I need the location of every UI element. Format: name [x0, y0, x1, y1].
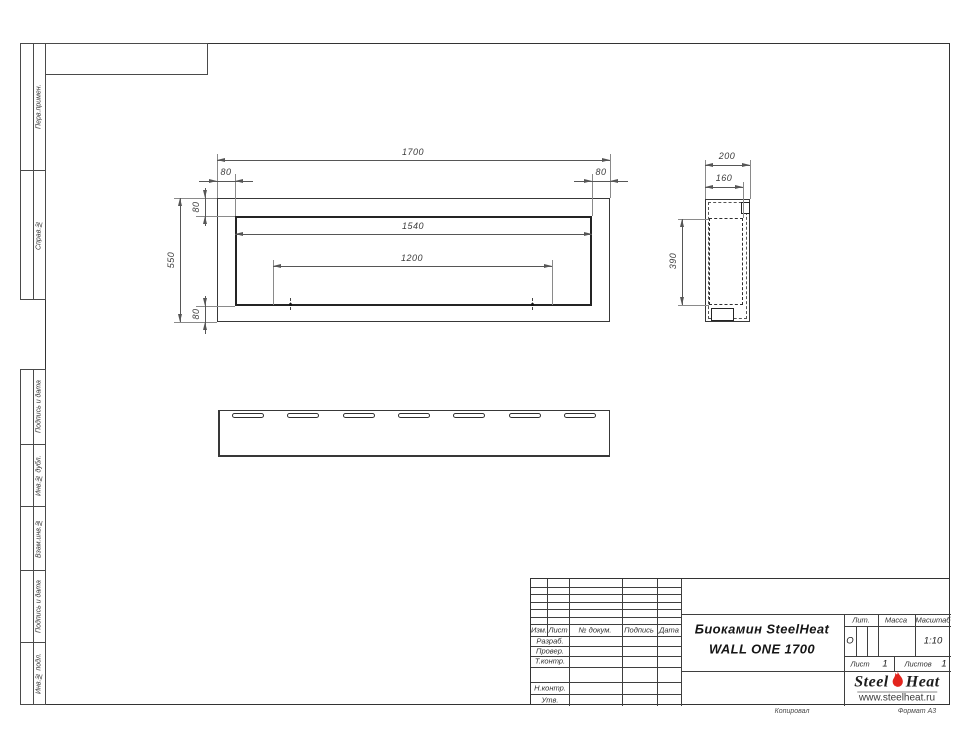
sheets-value: 1: [941, 658, 946, 669]
lit-value: О: [846, 636, 853, 647]
dimension-line-inner-depth: [705, 187, 743, 188]
mount-hole: [289, 303, 292, 306]
arrowhead: [178, 198, 182, 206]
grid-line: [844, 614, 845, 706]
grid-line: [878, 614, 879, 656]
arrowhead: [584, 232, 592, 236]
copy-note: Копировал: [775, 708, 810, 715]
extension-line: [743, 182, 744, 218]
dim-label-inner-height: 390: [668, 253, 678, 270]
dimension-line-opening-width: [235, 234, 592, 235]
dimension-line-total-width: [217, 160, 610, 161]
mass-label: Масса: [885, 616, 907, 625]
margin-label: Перв.примен.: [33, 44, 45, 170]
grid-line: [657, 579, 658, 706]
margin-cell: Инв.№ подл.: [20, 642, 46, 705]
dimension-line-total-depth: [705, 165, 750, 166]
arrowhead: [705, 185, 713, 189]
vent-slot: [564, 413, 596, 418]
arrowhead: [680, 219, 684, 227]
margin-cell: Справ.№: [20, 170, 46, 300]
vent-slot-row: [232, 413, 596, 418]
logo-website: www.steelheat.ru: [857, 692, 937, 705]
row-developed-label: Разраб.: [536, 637, 563, 646]
logo-wordmark: Steel Heat: [854, 672, 940, 691]
row-ncontrol-label: Н.контр.: [534, 684, 566, 693]
arrowhead: [602, 158, 610, 162]
extension-line: [552, 260, 553, 305]
dimension-line-mount-spacing: [273, 266, 552, 267]
arrowhead: [610, 179, 618, 183]
steelheat-logo: Steel Heat www.steelheat.ru: [854, 672, 940, 705]
col-izm-label: Изм.: [531, 626, 547, 635]
margin-cell: Подпись и дата: [20, 369, 46, 445]
grid-line: [622, 579, 623, 706]
grid-line: [681, 579, 682, 706]
dimension-line-left-border: [199, 181, 253, 182]
arrowhead: [203, 322, 207, 330]
arrowhead: [203, 190, 207, 198]
sheet-value: 1: [882, 658, 887, 669]
vent-slot: [453, 413, 485, 418]
grid-line: [844, 656, 951, 657]
scale-value: 1:10: [924, 636, 943, 647]
row-tcontrol-label: Т.контр.: [535, 657, 565, 666]
dim-label-left-border: 80: [220, 167, 231, 177]
dim-label-total-depth: 200: [719, 151, 736, 161]
arrowhead: [235, 232, 243, 236]
extension-line: [750, 160, 751, 199]
dimension-line-total-height: [180, 198, 181, 322]
logo-word-heat: Heat: [906, 675, 940, 691]
designation-box: [45, 43, 208, 75]
margin-label: Подпись и дата: [33, 571, 45, 642]
arrowhead: [273, 264, 281, 268]
lit-label: Лит.: [852, 616, 870, 625]
arrowhead: [705, 163, 713, 167]
extension-line: [196, 306, 235, 307]
margin-label: Подпись и дата: [33, 370, 45, 444]
grid-line: [531, 609, 681, 610]
arrowhead: [544, 264, 552, 268]
vent-slot: [287, 413, 319, 418]
sheet-label: Лист: [850, 659, 869, 668]
dim-label-inner-depth: 160: [716, 173, 733, 183]
grid-line: [569, 579, 570, 706]
row-checked-label: Провер.: [536, 647, 564, 656]
dim-label-total-width: 1700: [402, 147, 424, 157]
margin-label: Справ.№: [33, 171, 45, 299]
margin-label: Инв.№ подл.: [33, 643, 45, 704]
arrowhead: [742, 163, 750, 167]
arrowhead: [235, 179, 243, 183]
dim-label-mount-spacing: 1200: [401, 253, 423, 263]
drawing-sheet: Перв.примен. Справ.№ Подпись и дата Инв.…: [0, 0, 970, 749]
margin-label: Инв.№ дубл.: [33, 445, 45, 506]
margin-cell: Перв.примен.: [20, 43, 46, 171]
vent-slot: [343, 413, 375, 418]
dim-label-bottom-border: 80: [191, 308, 201, 319]
extension-line: [678, 305, 709, 306]
extension-line: [174, 322, 217, 323]
grid-line: [531, 602, 681, 603]
dimension-line-right-border: [574, 181, 628, 182]
arrowhead: [203, 216, 207, 224]
dim-label-opening-width: 1540: [402, 221, 424, 231]
dimension-line-top-border: [205, 188, 206, 226]
arrowhead: [209, 179, 217, 183]
margin-cell: Инв.№ дубл.: [20, 444, 46, 507]
side-view-burner-block: [711, 308, 734, 321]
arrowhead: [217, 158, 225, 162]
vent-slot: [232, 413, 264, 418]
extension-line: [610, 154, 611, 198]
arrowhead: [584, 179, 592, 183]
col-list-label: Лист: [548, 626, 567, 635]
vent-slot: [509, 413, 541, 418]
col-docnum-label: № докум.: [578, 626, 611, 635]
margin-label: Взам.инв.№: [33, 507, 45, 570]
arrowhead: [735, 185, 743, 189]
mount-hole: [531, 303, 534, 306]
margin-cell: Взам.инв.№: [20, 506, 46, 571]
grid-line: [531, 667, 681, 668]
grid-line: [531, 617, 681, 618]
arrowhead: [178, 314, 182, 322]
document-title-line1: Биокамин SteelHeat: [695, 622, 830, 637]
dim-label-top-border: 80: [191, 201, 201, 212]
col-signature-label: Подпись: [624, 626, 654, 635]
grid-line: [681, 614, 951, 615]
row-approved-label: Утв.: [541, 696, 558, 705]
document-title-line2: WALL ONE 1700: [709, 642, 815, 657]
arrowhead: [203, 298, 207, 306]
grid-line: [894, 656, 895, 671]
grid-line: [531, 587, 681, 588]
vent-slot: [398, 413, 430, 418]
col-date-label: Дата: [659, 626, 679, 635]
margin-cell: Подпись и дата: [20, 570, 46, 643]
format-note: Формат А3: [898, 708, 936, 715]
extension-line: [196, 216, 235, 217]
grid-line: [531, 594, 681, 595]
grid-line: [844, 626, 951, 627]
sheets-label: Листов: [904, 659, 931, 668]
arrowhead: [680, 297, 684, 305]
grid-line: [867, 626, 868, 656]
scale-label: Масштаб: [915, 616, 950, 625]
side-view-inner-hidden-contour: [709, 218, 743, 305]
dim-label-right-border: 80: [595, 167, 606, 177]
grid-line: [856, 626, 857, 656]
dimension-line-bottom-border: [205, 296, 206, 334]
dimension-line-inner-height: [682, 219, 683, 305]
title-block: Изм. Лист № докум. Подпись Дата Разраб. …: [530, 578, 950, 705]
flame-icon: [890, 672, 905, 691]
dim-label-total-height: 550: [166, 252, 176, 269]
logo-word-steel: Steel: [854, 675, 889, 691]
